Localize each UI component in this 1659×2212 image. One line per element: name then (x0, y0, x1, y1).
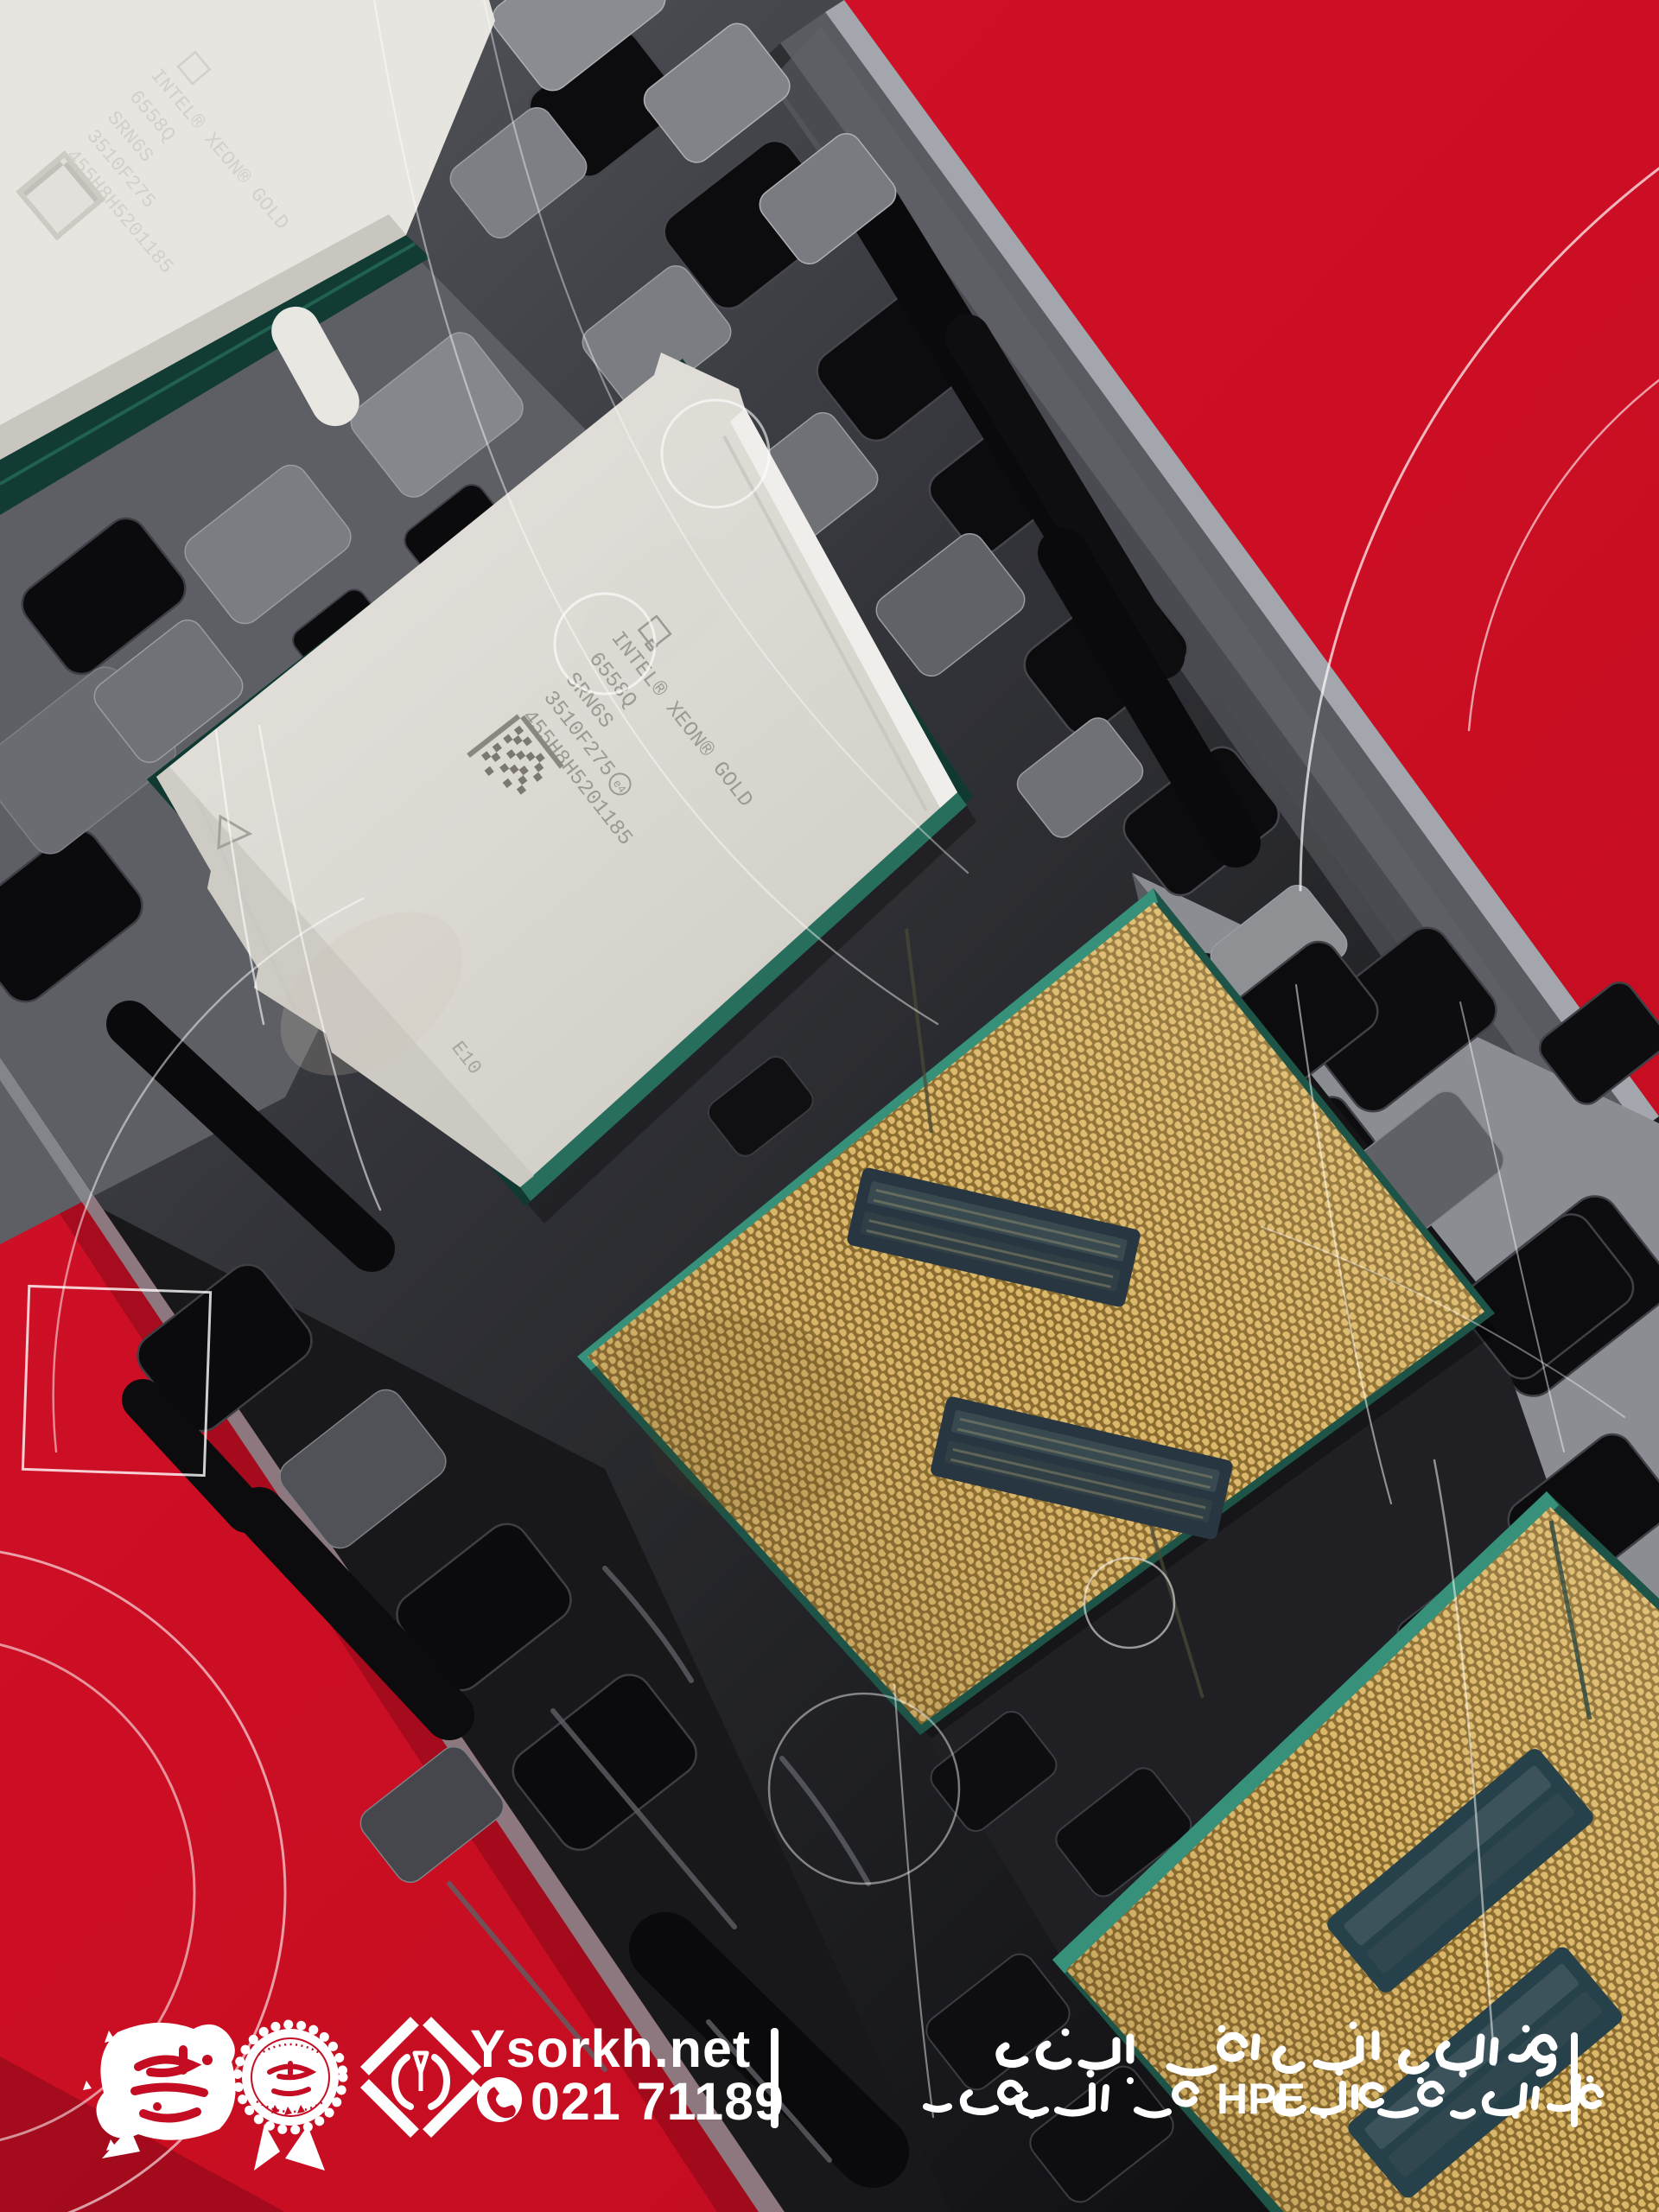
svg-text:Ysorkh.net: Ysorkh.net (470, 2019, 751, 2078)
svg-text:021 71189: 021 71189 (531, 2072, 785, 2131)
svg-text:HPE: HPE (1217, 2075, 1306, 2123)
